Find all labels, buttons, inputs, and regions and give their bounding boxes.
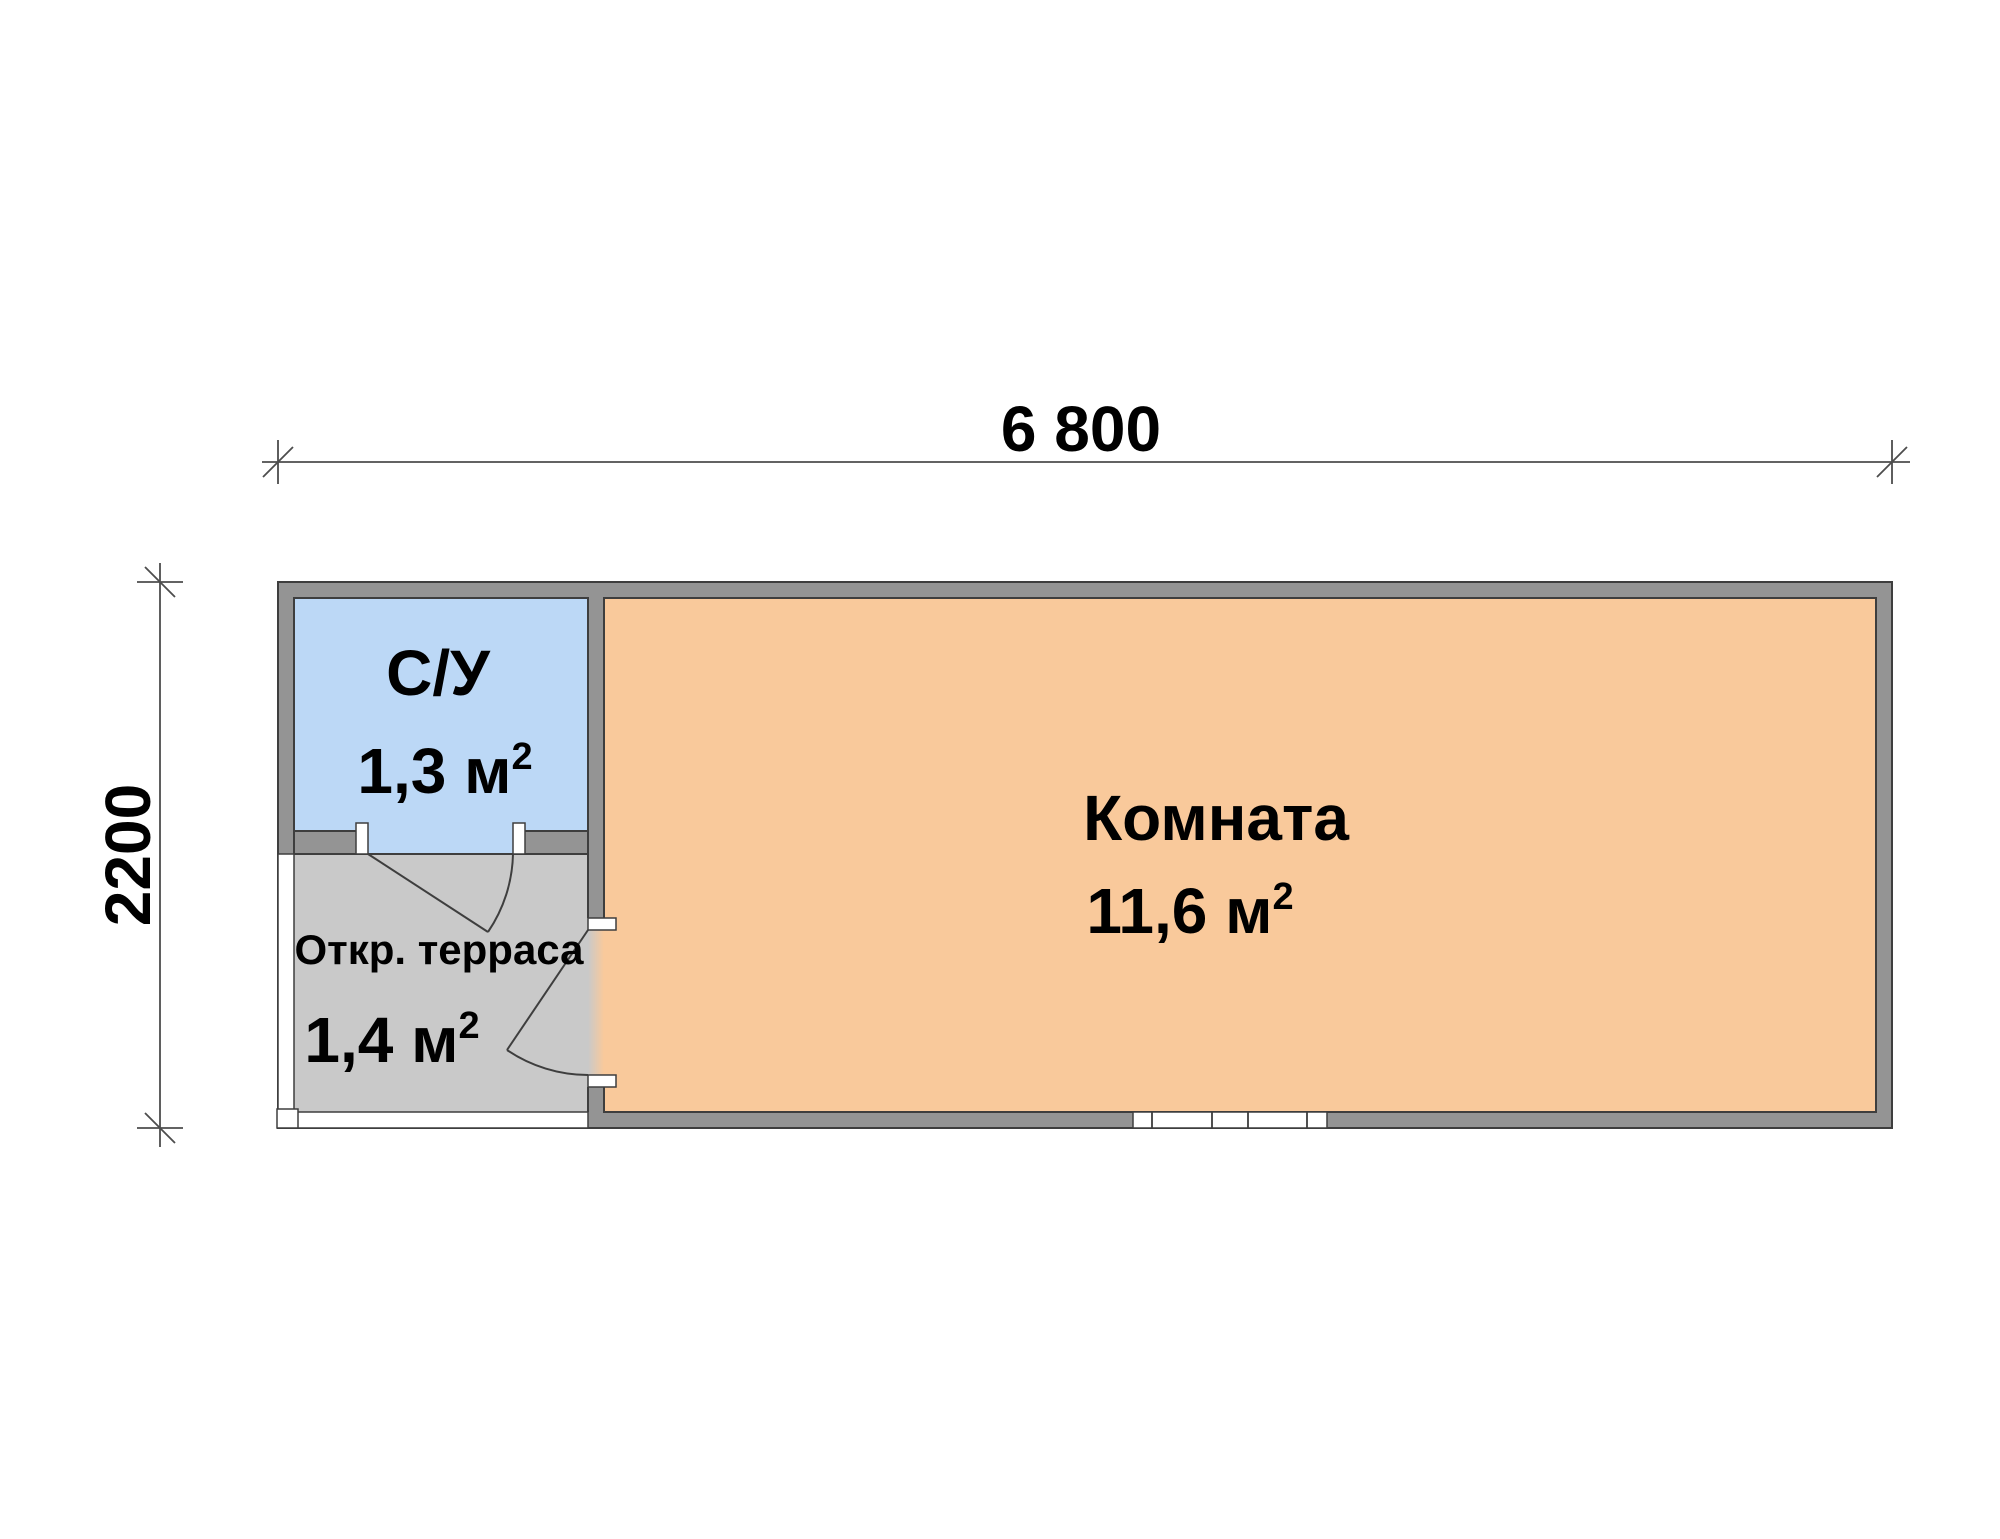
wall-left xyxy=(278,582,294,854)
terrace-area-label: 1,4 м2 xyxy=(304,1004,479,1076)
room-area-label: 11,6 м2 xyxy=(1086,875,1293,947)
wall-interior-vertical-bottom xyxy=(588,1087,604,1112)
terrace-corner-post xyxy=(277,1109,298,1128)
terrace-area-superscript: 2 xyxy=(458,1005,479,1047)
dimension-width: 6 800 xyxy=(262,393,1910,484)
floor-plan-page: 6 800 2200 С/У 1,3 м2 Откр. терраса 1,4 … xyxy=(0,0,2000,1539)
room-name-label: Комната xyxy=(1083,782,1349,854)
window xyxy=(1133,1112,1327,1128)
room-door-jamb-top xyxy=(588,918,616,930)
room-area-superscript: 2 xyxy=(1273,876,1294,918)
floor-plan-canvas: 6 800 2200 С/У 1,3 м2 Откр. терраса 1,4 … xyxy=(0,0,2000,1539)
wall-top xyxy=(278,582,1892,598)
wall-bottom-left-segment xyxy=(588,1112,1133,1128)
room-door-jamb-bottom xyxy=(588,1075,616,1087)
terrace-name-label: Откр. терраса xyxy=(294,926,584,973)
terrace-open-edge-left xyxy=(278,854,294,1112)
terrace-open-edge-bottom xyxy=(278,1112,588,1128)
doorway-floor-transition xyxy=(588,930,604,1075)
dimension-width-label: 6 800 xyxy=(1001,393,1161,465)
room-floor xyxy=(588,598,1876,1112)
bathroom-door-jamb-left xyxy=(356,823,368,854)
bathroom-area-superscript: 2 xyxy=(511,736,532,778)
bathroom-area-label: 1,3 м2 xyxy=(357,735,532,807)
bathroom-door-jamb-right xyxy=(513,823,525,854)
dimension-height-label: 2200 xyxy=(92,784,164,926)
bathroom-name-label: С/У xyxy=(386,637,491,709)
wall-bottom-right-segment xyxy=(1327,1112,1876,1128)
window-frame xyxy=(1133,1112,1327,1128)
dimension-height: 2200 xyxy=(92,563,183,1147)
wall-interior-vertical-top xyxy=(588,598,604,918)
wall-right xyxy=(1876,598,1892,1128)
